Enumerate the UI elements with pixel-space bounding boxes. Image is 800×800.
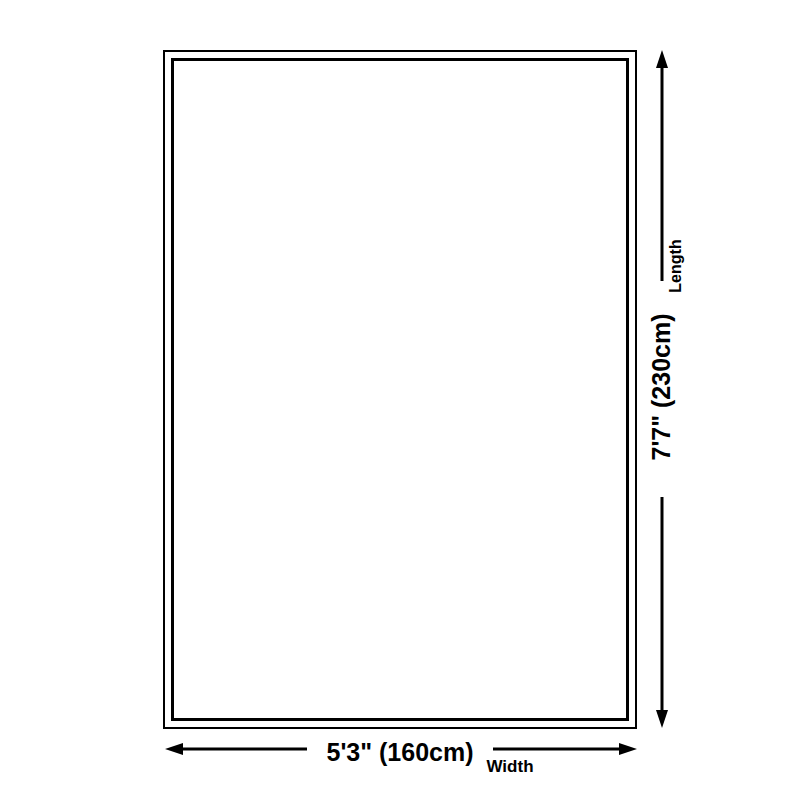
length-arrow-up-icon bbox=[656, 50, 668, 68]
width-label: Width bbox=[486, 758, 533, 775]
width-value: 5'3" (160cm) bbox=[326, 740, 473, 765]
length-value: 7'7" (230cm) bbox=[649, 313, 674, 460]
width-arrow-right-icon bbox=[619, 743, 637, 755]
length-arrow-down-icon bbox=[656, 710, 668, 728]
width-arrow-left-icon bbox=[165, 743, 183, 755]
rug-size-diagram: 7'7" (230cm) Length 5'3" (160cm) Width bbox=[0, 0, 800, 800]
length-label: Length bbox=[668, 239, 684, 292]
dimension-arrows bbox=[0, 0, 800, 800]
